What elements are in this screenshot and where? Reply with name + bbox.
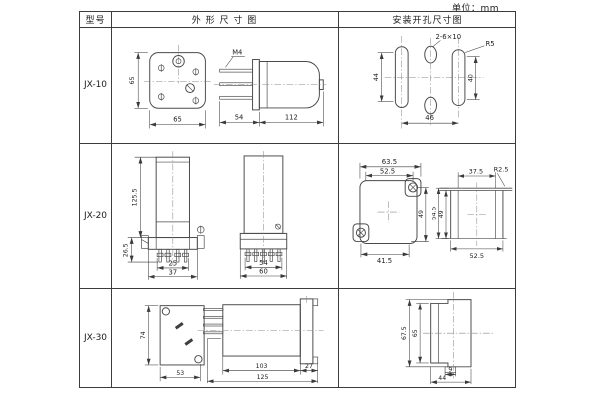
dimension-table: 型号 外 形 尺 寸 图 安装开孔尺寸图 JX-10 JX-20 JX-30 6…: [79, 11, 516, 388]
header-model: 型号: [80, 12, 111, 27]
dim-label: 65: [412, 329, 419, 337]
dim-label: 44: [438, 375, 446, 382]
dim-label: 52.5: [470, 252, 485, 260]
jx30-mounting-cell: 67.5 65 9 44: [338, 288, 517, 388]
dim-label: 44: [373, 73, 380, 81]
dim-label: 125.5: [132, 188, 139, 206]
dim-label: 49: [418, 210, 425, 218]
dim-label: 52.5: [380, 168, 395, 176]
dim-label: 46: [425, 114, 434, 122]
dim-label: 54: [259, 259, 268, 267]
jx10-mounting-diagram: 2-6×10 R5 44 40 46: [366, 31, 508, 137]
thread-label: M4: [232, 49, 242, 57]
jx30-mounting-diagram: 67.5 65 9 44: [394, 290, 500, 386]
dim-label: 41.5: [377, 257, 392, 265]
model-label-jx20: JX-20: [80, 143, 111, 288]
jx20-cutout-diagram: 63.5 52.5 49 41.5: [340, 155, 434, 275]
dim-label: 9: [448, 367, 452, 374]
header-mounting: 安装开孔尺寸图: [338, 12, 517, 27]
jx20-outline-cell: 125.5 26.5 25 37: [111, 143, 338, 288]
dim-label: 26.5: [123, 243, 130, 257]
dim-label: 49: [438, 210, 445, 218]
jx20-mounting-cell: 63.5 52.5 49 41.5 R2.5: [338, 143, 517, 288]
jx20-side-view-diagram: 54 60: [217, 149, 309, 282]
dim-label: 37.5: [469, 168, 484, 176]
jx30-side-view-diagram: 103 27 125: [197, 296, 329, 388]
jx10-top-view-diagram: 65 65: [119, 43, 215, 139]
dim-label: 112: [285, 114, 298, 122]
dim-label: 125: [257, 374, 269, 381]
hole-spec-label: 2-6×10: [435, 33, 461, 41]
dim-label: 37: [168, 268, 177, 276]
dim-label: 63.5: [382, 158, 397, 166]
dim-label: 53: [176, 370, 184, 377]
dim-label: 27: [305, 363, 313, 370]
dim-label: 103: [256, 363, 268, 370]
radius-label: R5: [485, 40, 494, 48]
dim-label: 54: [235, 114, 244, 122]
dim-label: 65: [129, 76, 136, 84]
dim-label: 67.5: [401, 326, 408, 340]
dim-label: 25: [168, 259, 177, 267]
model-label-jx10: JX-10: [80, 27, 111, 143]
jx20-front-view-diagram: 125.5 26.5 25 37: [115, 149, 213, 282]
dim-label: 65: [173, 116, 182, 124]
model-label-jx30: JX-30: [80, 288, 111, 388]
jx10-side-view-diagram: M4 54 112: [211, 45, 329, 137]
jx30-outline-cell: 74 53 103 27 125: [111, 288, 338, 388]
jx10-mounting-cell: 2-6×10 R5 44 40 46: [338, 27, 517, 143]
dim-label: 74: [140, 331, 147, 339]
jx10-outline-cell: 65 65 M4 54 112: [111, 27, 338, 143]
dim-label: 40: [467, 74, 474, 82]
dim-label: 60: [259, 268, 268, 276]
radius-label: R2.5: [494, 165, 509, 173]
dim-label: 54.5: [432, 207, 438, 220]
jx20-section-diagram: R2.5 37.5 54.5 49 52.5: [432, 159, 516, 264]
header-outline: 外 形 尺 寸 图: [111, 12, 338, 27]
